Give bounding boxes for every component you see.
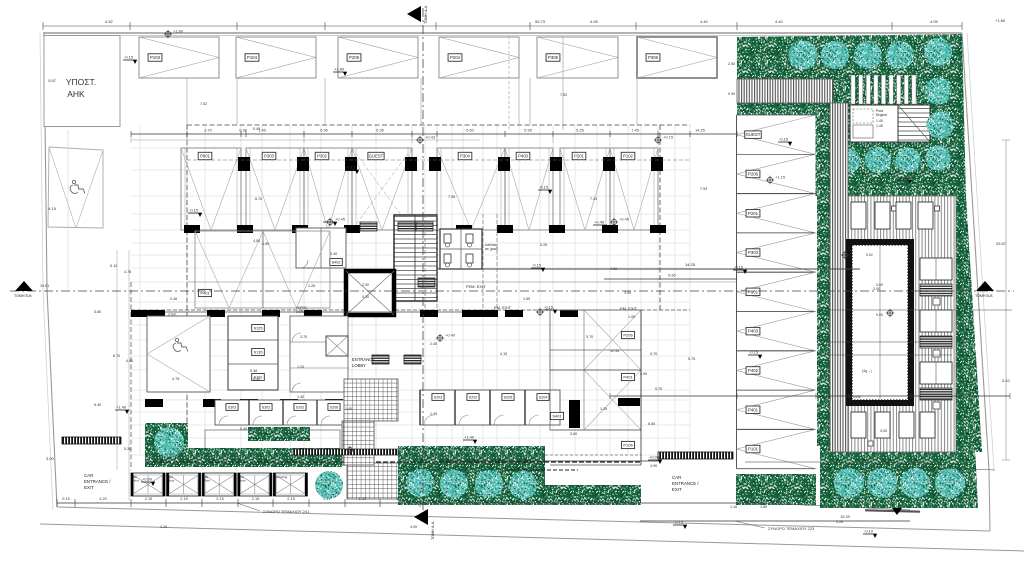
svg-text:4.40: 4.40 <box>700 19 709 24</box>
svg-text:+0.45: +0.45 <box>335 217 346 222</box>
svg-text:floor: floor <box>169 479 175 483</box>
svg-text:2.15: 2.15 <box>252 497 259 501</box>
svg-text:1.80: 1.80 <box>760 505 767 509</box>
svg-text:S303: S303 <box>228 405 236 409</box>
svg-text:ΣΥΝΟΡΟ ΤΕΜΑΧΙΟΥ 223: ΣΥΝΟΡΟ ΤΕΜΑΧΙΟΥ 223 <box>768 526 815 531</box>
svg-text:S125: S125 <box>254 326 263 330</box>
svg-text:7.05: 7.05 <box>448 195 455 199</box>
svg-text:3.60: 3.60 <box>570 432 577 436</box>
svg-text:+0.45: +0.45 <box>594 220 605 225</box>
svg-text:EXIT: EXIT <box>84 485 94 490</box>
svg-text:-0.15: -0.15 <box>779 137 789 142</box>
svg-text:P204: P204 <box>450 55 461 60</box>
svg-text:(4g→): (4g→) <box>862 369 872 373</box>
svg-text:0.90: 0.90 <box>728 92 735 96</box>
svg-text:+0.00: +0.00 <box>142 477 153 482</box>
svg-text:S206: S206 <box>330 405 338 409</box>
svg-text:S202: S202 <box>296 405 304 409</box>
svg-text:14.25: 14.25 <box>695 129 705 133</box>
svg-text:-0.15: -0.15 <box>124 55 134 60</box>
svg-text:5.40: 5.40 <box>240 427 247 431</box>
svg-text:ENTRANCE: ENTRANCE <box>352 357 375 362</box>
svg-text:P306: P306 <box>648 55 659 60</box>
svg-text:3.70: 3.70 <box>586 335 593 339</box>
svg-text:5.25: 5.25 <box>576 129 583 133</box>
svg-text:0.15: 0.15 <box>62 497 69 501</box>
svg-text:5.95: 5.95 <box>320 129 327 133</box>
svg-text:3.00: 3.00 <box>46 456 55 461</box>
svg-text:5.57: 5.57 <box>48 78 57 83</box>
svg-text:+1.40: +1.40 <box>464 435 475 440</box>
svg-text:4.20: 4.20 <box>362 295 369 299</box>
svg-text:+1.40: +1.40 <box>116 405 127 410</box>
svg-text:-0.15: -0.15 <box>749 350 759 355</box>
svg-text:P303: P303 <box>748 250 759 255</box>
svg-text:4.20: 4.20 <box>99 497 106 501</box>
svg-text:7.52: 7.52 <box>200 102 207 106</box>
svg-text:S401: S401 <box>552 413 562 418</box>
svg-text:6.65: 6.65 <box>648 422 655 426</box>
svg-text:1.40: 1.40 <box>297 395 304 399</box>
svg-text:EM. EXIT: EM. EXIT <box>494 305 512 310</box>
svg-text:S203: S203 <box>434 395 442 399</box>
svg-text:4.05: 4.05 <box>590 19 599 24</box>
svg-text:P401: P401 <box>748 407 759 412</box>
svg-text:P106: P106 <box>623 442 633 447</box>
svg-text:1.25: 1.25 <box>600 407 607 411</box>
svg-text:S202: S202 <box>469 395 477 399</box>
svg-text:0.40: 0.40 <box>253 377 260 381</box>
svg-text:GUEST: GUEST <box>746 132 761 137</box>
svg-text:-0.15: -0.15 <box>674 520 684 525</box>
svg-text:1.10: 1.10 <box>359 497 366 501</box>
svg-text:1.45: 1.45 <box>345 407 352 411</box>
svg-text:5.80: 5.80 <box>94 310 101 314</box>
svg-text:P201: P201 <box>574 154 584 159</box>
svg-text:3.40: 3.40 <box>330 252 337 256</box>
svg-text:1.28: 1.28 <box>308 284 315 288</box>
svg-text:1.05: 1.05 <box>628 315 635 319</box>
svg-text:7.53: 7.53 <box>700 187 707 191</box>
svg-text:P104: P104 <box>247 55 258 60</box>
svg-text:9.02: 9.02 <box>866 253 873 257</box>
svg-text:1.45: 1.45 <box>876 124 883 128</box>
svg-text:P305: P305 <box>548 55 559 60</box>
svg-text:ΑΝΑΨ.: ΑΝΑΨ. <box>296 310 306 314</box>
svg-text:6.70: 6.70 <box>113 354 120 358</box>
svg-text:-0.10: -0.10 <box>864 529 874 534</box>
svg-text:1.20: 1.20 <box>297 365 304 369</box>
svg-text:15.39: 15.39 <box>840 515 850 519</box>
svg-text:floor: floor <box>204 479 210 483</box>
svg-text:25.87: 25.87 <box>996 241 1007 246</box>
svg-text:-0.15: -0.15 <box>346 165 356 170</box>
svg-text:P302: P302 <box>317 154 327 159</box>
svg-text:5.35: 5.35 <box>376 129 383 133</box>
svg-text:9.00: 9.00 <box>876 313 883 317</box>
svg-text:4.00: 4.00 <box>262 242 269 246</box>
svg-text:P206: P206 <box>623 332 633 337</box>
svg-text:1.80: 1.80 <box>396 497 403 501</box>
svg-text:2.50: 2.50 <box>362 283 369 287</box>
svg-text:6.70: 6.70 <box>255 197 262 201</box>
svg-text:P303: P303 <box>264 154 274 159</box>
svg-text:5.38: 5.38 <box>124 447 131 451</box>
svg-text:S135: S135 <box>254 350 263 354</box>
svg-text:wc (pool): wc (pool) <box>485 247 498 251</box>
svg-text:GUEST: GUEST <box>369 154 384 159</box>
svg-text:1.10: 1.10 <box>730 505 737 509</box>
svg-text:3.70: 3.70 <box>204 129 211 133</box>
svg-text:5.70: 5.70 <box>650 352 657 356</box>
svg-text:+0.45: +0.45 <box>619 217 630 222</box>
svg-text:4.15: 4.15 <box>48 206 57 211</box>
svg-text:14.25: 14.25 <box>685 262 696 267</box>
svg-text:-0.15: -0.15 <box>189 208 199 213</box>
svg-text:2.15: 2.15 <box>180 497 187 501</box>
svg-text:POOL: POOL <box>850 394 862 399</box>
svg-text:P403: P403 <box>748 329 759 334</box>
svg-text:P201: P201 <box>748 211 759 216</box>
svg-text:ENTRANCE /: ENTRANCE / <box>672 481 699 486</box>
svg-text:5.40: 5.40 <box>94 403 101 407</box>
svg-text:3.10: 3.10 <box>1002 378 1011 383</box>
svg-text:CAR: CAR <box>672 475 681 480</box>
svg-text:4.00: 4.00 <box>410 525 417 529</box>
svg-text:+1.15: +1.15 <box>775 175 786 180</box>
svg-text:ΥΠΟΣΤ.: ΥΠΟΣΤ. <box>66 77 96 87</box>
svg-text:-0.15: -0.15 <box>532 263 542 268</box>
svg-text:2.50: 2.50 <box>728 62 735 66</box>
svg-text:9.70: 9.70 <box>655 387 662 391</box>
svg-text:3.00: 3.00 <box>880 429 887 433</box>
svg-text:-0.15: -0.15 <box>734 265 744 270</box>
svg-text:S402: S402 <box>332 260 341 264</box>
svg-text:4.40: 4.40 <box>775 19 784 24</box>
svg-text:4.90: 4.90 <box>126 359 133 363</box>
svg-text:4.90: 4.90 <box>640 372 647 376</box>
svg-text:7.53: 7.53 <box>560 93 567 97</box>
svg-text:4.00: 4.00 <box>253 239 260 243</box>
svg-text:+1.80: +1.80 <box>995 18 1006 23</box>
svg-text:4.90: 4.90 <box>650 464 657 468</box>
svg-text:ΤΟΜΗ Β-Β: ΤΟΜΗ Β-Β <box>14 294 32 298</box>
svg-text:4.15: 4.15 <box>500 352 507 356</box>
svg-text:7.25: 7.25 <box>590 197 597 201</box>
svg-text:+1.05: +1.05 <box>956 354 965 358</box>
svg-text:2.45: 2.45 <box>430 342 437 346</box>
svg-text:S204: S204 <box>539 395 547 399</box>
svg-text:ΣΥΝΟΡΟ ΤΕΜΑΧΙΟΥ 241: ΣΥΝΟΡΟ ΤΕΜΑΧΙΟΥ 241 <box>263 509 310 514</box>
svg-text:5.25: 5.25 <box>540 243 547 247</box>
svg-text:0.40: 0.40 <box>253 127 260 131</box>
svg-text:4.75: 4.75 <box>172 377 179 381</box>
svg-text:ΑΗΚ: ΑΗΚ <box>67 89 85 99</box>
svg-text:4.05: 4.05 <box>930 19 939 24</box>
svg-text:EXIT: EXIT <box>672 487 682 492</box>
svg-text:2.15: 2.15 <box>216 497 223 501</box>
svg-text:1.45: 1.45 <box>430 412 437 416</box>
svg-text:5.75: 5.75 <box>688 357 695 361</box>
svg-text:ΤΟΜΗ Β-Β: ΤΟΜΗ Β-Β <box>975 294 993 298</box>
svg-text:P304: P304 <box>460 154 470 159</box>
svg-text:+0.40: +0.40 <box>445 333 456 338</box>
svg-text:-0.15: -0.15 <box>539 185 549 190</box>
svg-text:P901: P901 <box>200 154 210 159</box>
svg-text:LOBBY: LOBBY <box>352 363 366 368</box>
svg-text:2.15: 2.15 <box>287 497 294 501</box>
svg-text:P102: P102 <box>623 154 633 159</box>
svg-text:floor: floor <box>240 479 246 483</box>
svg-text:+0.15: +0.15 <box>663 135 674 140</box>
svg-text:7.45: 7.45 <box>631 129 638 133</box>
svg-text:4.00: 4.00 <box>610 267 617 271</box>
svg-text:ΤΟΜΗ Α-Α: ΤΟΜΗ Α-Α <box>431 521 435 540</box>
svg-text:4.75: 4.75 <box>124 270 131 274</box>
svg-text:0.98: 0.98 <box>239 129 246 133</box>
svg-text:2.17: 2.17 <box>323 497 330 501</box>
svg-text:0.26: 0.26 <box>836 520 843 524</box>
svg-text:CAR: CAR <box>84 473 93 478</box>
svg-text:P901: P901 <box>748 289 759 294</box>
svg-text:Engine: Engine <box>876 113 887 117</box>
svg-text:recycling: recycling <box>275 475 287 479</box>
svg-text:ΤΟΜΗ Α-Α: ΤΟΜΗ Α-Α <box>424 5 428 24</box>
svg-text:P206: P206 <box>748 171 759 176</box>
svg-text:3.00: 3.00 <box>873 287 880 291</box>
svg-text:4.20: 4.20 <box>160 525 167 529</box>
svg-text:ENTRANCE /: ENTRANCE / <box>84 479 111 484</box>
svg-text:0.46: 0.46 <box>170 297 177 301</box>
svg-text:12.45: 12.45 <box>610 349 619 353</box>
svg-text:P101: P101 <box>748 447 759 452</box>
svg-text:5.40: 5.40 <box>250 427 257 431</box>
svg-text:5.60: 5.60 <box>668 274 675 278</box>
svg-text:4.52: 4.52 <box>105 19 114 24</box>
svg-text:5.10: 5.10 <box>110 264 117 268</box>
svg-text:19.01: 19.01 <box>40 284 49 288</box>
svg-text:5.60: 5.60 <box>466 129 473 133</box>
svg-text:floor: floor <box>133 479 139 483</box>
svg-text:-0.15: -0.15 <box>899 175 909 180</box>
svg-text:P402: P402 <box>748 368 759 373</box>
svg-text:+0.43: +0.43 <box>425 135 436 140</box>
svg-text:50.73: 50.73 <box>535 19 546 24</box>
svg-text:P401: P401 <box>623 374 633 379</box>
svg-text:2.15: 2.15 <box>145 497 152 501</box>
svg-text:P103: P103 <box>150 55 161 60</box>
svg-text:5.95: 5.95 <box>524 129 531 133</box>
svg-text:3.90: 3.90 <box>624 291 631 295</box>
svg-text:+1.80: +1.80 <box>173 29 184 34</box>
svg-text:+0.11: +0.11 <box>545 307 556 312</box>
svg-text:P205: P205 <box>349 55 360 60</box>
svg-text:P403: P403 <box>518 154 528 159</box>
svg-text:5.38: 5.38 <box>250 369 257 373</box>
svg-text:3.70: 3.70 <box>300 335 307 339</box>
svg-text:+1.80: +1.80 <box>334 67 345 72</box>
svg-text:1.45: 1.45 <box>876 119 883 123</box>
svg-text:S205: S205 <box>504 395 512 399</box>
svg-text:+1.60: +1.60 <box>956 341 965 345</box>
svg-text:S302: S302 <box>262 405 270 409</box>
svg-text:1.65: 1.65 <box>523 297 530 301</box>
svg-text:+0.00: +0.00 <box>649 455 660 460</box>
